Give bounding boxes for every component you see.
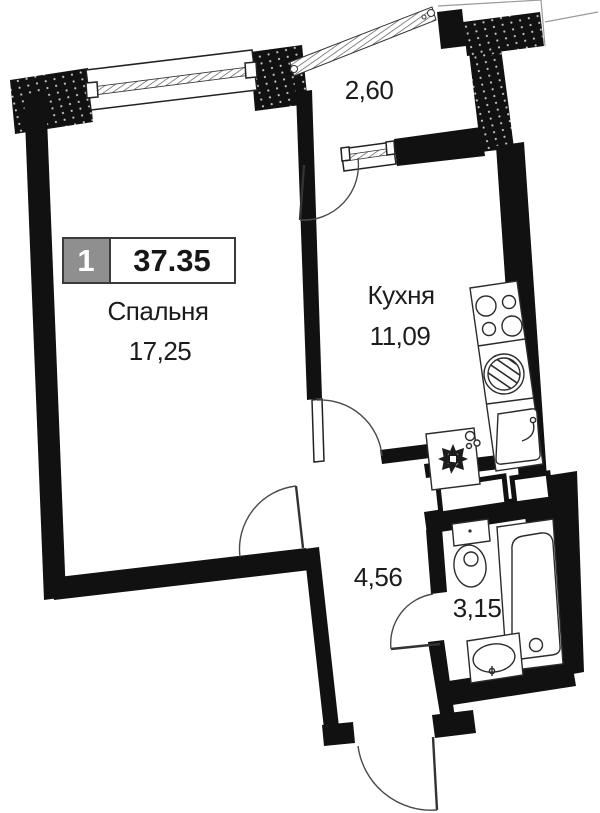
kitchen-label: Кухня: [367, 280, 434, 310]
badge-room-count: 1: [77, 243, 94, 278]
bedroom-door: [240, 486, 303, 557]
entrance-door: [358, 737, 437, 810]
kitchen-sink-icon: [496, 409, 540, 464]
kitchen-door: [312, 399, 382, 462]
kitchen-window: [341, 141, 396, 171]
wall-top-left-block: [10, 68, 93, 134]
bathroom-sink-icon: [467, 633, 523, 683]
badge-total-area: 37.35: [133, 243, 211, 278]
wall-entrance-left-stub: [322, 722, 355, 746]
wall-bathroom-left-upper: [426, 528, 447, 594]
toilet-icon: [452, 519, 490, 589]
balcony-glazing: [290, 7, 436, 76]
bedroom-window: [86, 50, 257, 110]
bedroom-label: Спальня: [108, 296, 209, 326]
wall-left: [24, 93, 66, 600]
wall-balcony-corner-piece: [437, 9, 466, 49]
wall-kitchen-door-stub: [380, 444, 430, 464]
wall-kitchen-top-band: [394, 127, 485, 166]
wall-bathroom-left-lower: [428, 640, 455, 720]
area-badge: 1 37.35: [63, 238, 235, 283]
wall-bedroom-bottom: [50, 548, 310, 600]
vent-shaft-small: [512, 473, 551, 504]
floor-plan: 1 37.35 Спальня 17,25 Кухня 11,09 2,60 4…: [0, 0, 600, 813]
fan-icon: [426, 428, 480, 490]
hallway-area-label: 4,56: [354, 562, 403, 592]
bedroom-area-label: 17,25: [129, 336, 192, 366]
wall-top-right-band: [463, 12, 544, 56]
wall-bedroom-kitchen-divider: [296, 90, 322, 400]
balcony-area-label: 2,60: [345, 75, 394, 105]
wall-hallway-left: [304, 547, 339, 729]
bathroom-area-label: 3,15: [453, 593, 502, 623]
bathroom-door: [391, 594, 440, 649]
kitchen-area-label: 11,09: [370, 321, 431, 351]
